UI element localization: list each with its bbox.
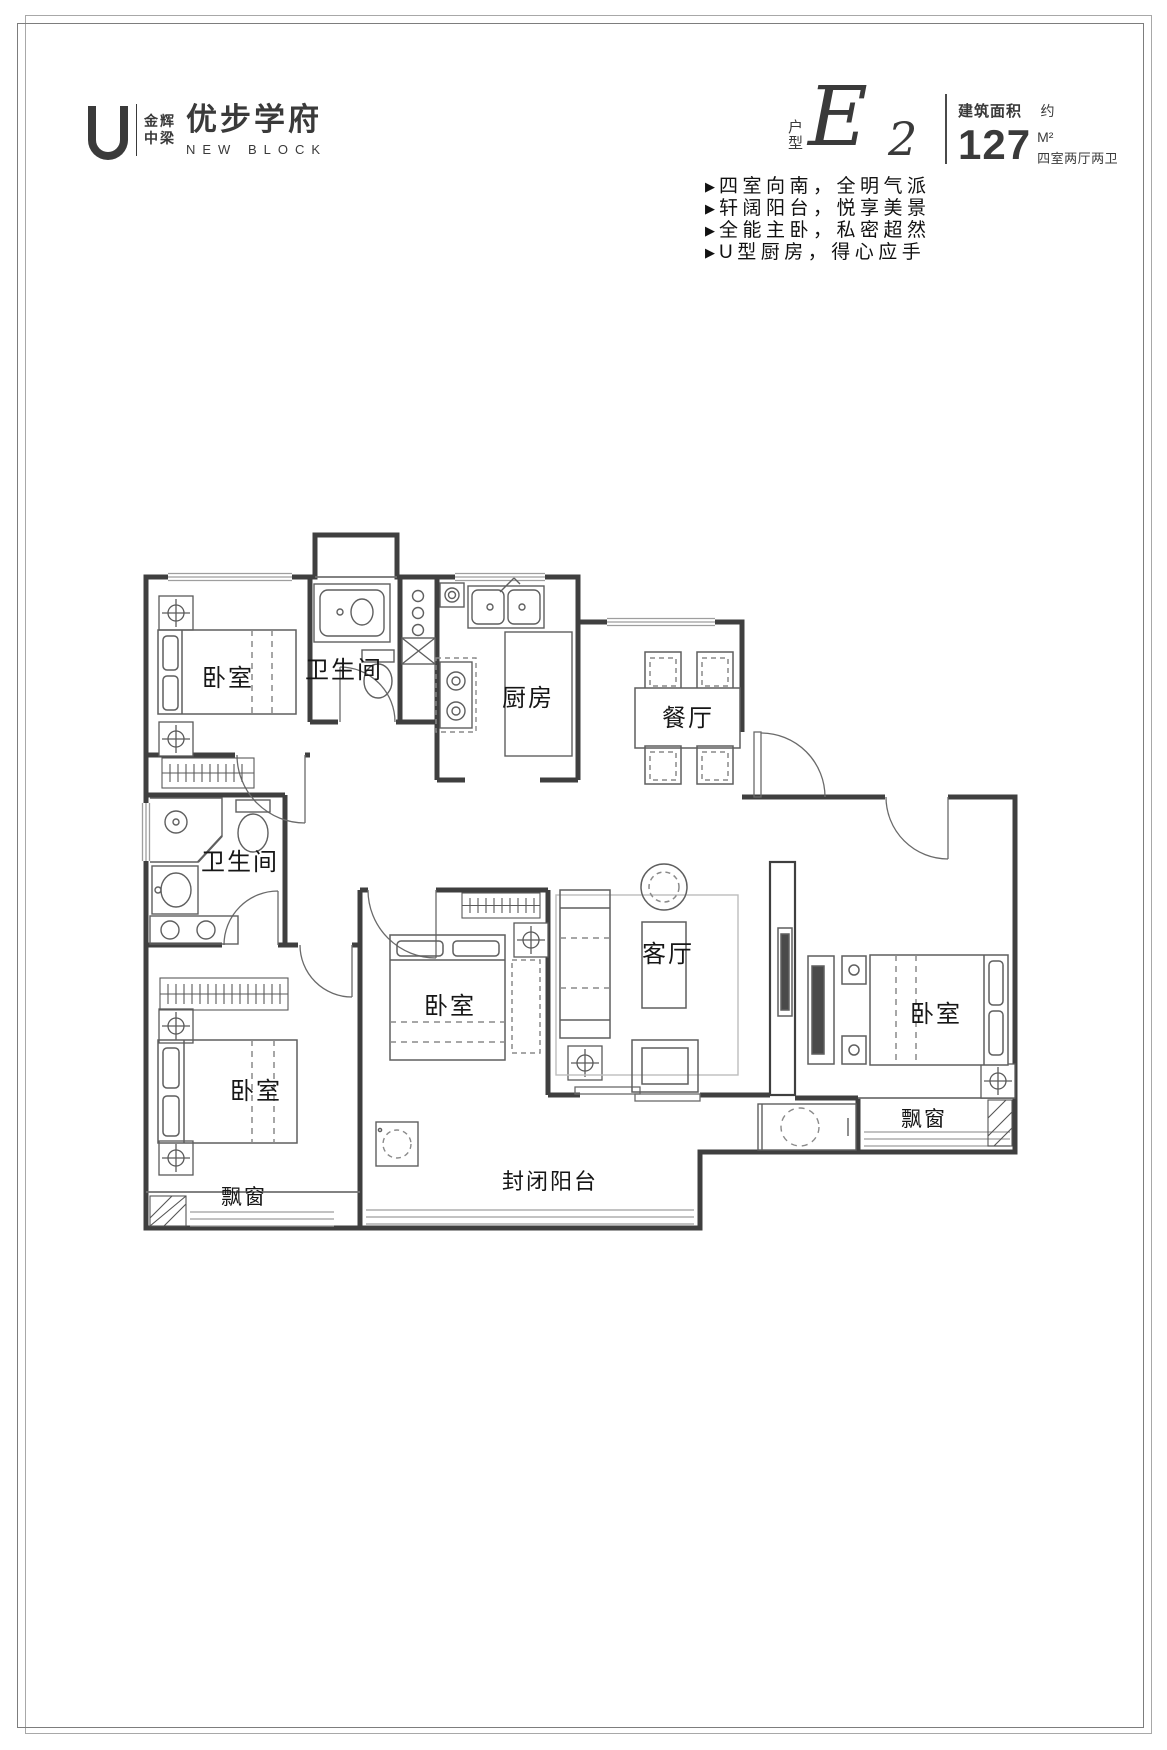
room-label-dining: 餐厅 <box>662 705 714 732</box>
feature-item: ▶ U型厨房，得心应手 <box>705 242 931 264</box>
room-label-living: 客厅 <box>642 941 694 968</box>
area-approx: 约 <box>1040 101 1054 121</box>
bullet-icon: ▶ <box>705 242 715 264</box>
balcony-appliances <box>376 1104 856 1166</box>
room-label-kitchen: 厨房 <box>502 685 554 712</box>
project-subtitle: NEW BLOCK <box>186 142 327 157</box>
area-title: 建筑面积 <box>958 100 1022 121</box>
room-label-bedroom-bottomleft: 卧室 <box>230 1078 282 1105</box>
bullet-icon: ▶ <box>705 220 715 242</box>
unit-model-number: 2 <box>888 112 917 166</box>
brand-line-2: 中梁 <box>144 130 176 147</box>
bullet-icon: ▶ <box>705 176 715 198</box>
logo-u-icon <box>88 106 128 160</box>
doors <box>224 667 948 1101</box>
brand-line-1: 金辉 <box>144 113 176 130</box>
feature-item: ▶ 轩阔阳台，悦享美景 <box>705 198 931 220</box>
feature-list: ▶ 四室向南，全明气派 ▶ 轩阔阳台，悦享美景 ▶ 全能主卧，私密超然 ▶ U型… <box>705 176 931 264</box>
unit-model-letter: E <box>808 72 868 164</box>
area-unit: M² <box>1037 129 1118 145</box>
floorplan-page: { "logo": { "brand_line1": "金辉", "brand_… <box>0 0 1167 1750</box>
unit-type-label: 户型 <box>788 120 804 152</box>
bed-master <box>808 955 1008 1065</box>
unit-divider <box>945 94 947 164</box>
room-label-bathroom-top: 卫生间 <box>305 657 383 684</box>
brand-names: 金辉 中梁 <box>136 104 176 156</box>
kitchen-fixtures <box>436 578 572 756</box>
room-label-bathroom-left: 卫生间 <box>201 849 279 876</box>
room-label-bay-right: 飘窗 <box>901 1108 947 1131</box>
room-label-bay-left: 飘窗 <box>221 1186 267 1209</box>
rooms-summary: 四室两厅两卫 <box>1037 148 1118 167</box>
room-label-bedroom-master: 卧室 <box>910 1001 962 1028</box>
project-name: 优步学府 <box>186 102 327 138</box>
room-label-balcony: 封闭阳台 <box>502 1169 598 1194</box>
area-value: 127 <box>958 123 1031 167</box>
feature-item: ▶ 全能主卧，私密超然 <box>705 220 931 242</box>
hatch-marks <box>150 1100 1012 1226</box>
room-label-bedroom-middle: 卧室 <box>424 993 476 1020</box>
windows <box>141 572 1011 1227</box>
bullet-icon: ▶ <box>705 198 715 220</box>
room-label-bedroom-topleft: 卧室 <box>202 665 254 692</box>
brand-logo: 金辉 中梁 优步学府 NEW BLOCK <box>88 102 327 160</box>
walls <box>146 535 1015 1228</box>
feature-item: ▶ 四室向南，全明气派 <box>705 176 931 198</box>
floor-plan: 卧室 卫生间 厨房 餐厅 卫生间 客厅 卧室 卧室 卧室 飘窗 飘窗 封闭阳台 <box>138 520 1030 1244</box>
